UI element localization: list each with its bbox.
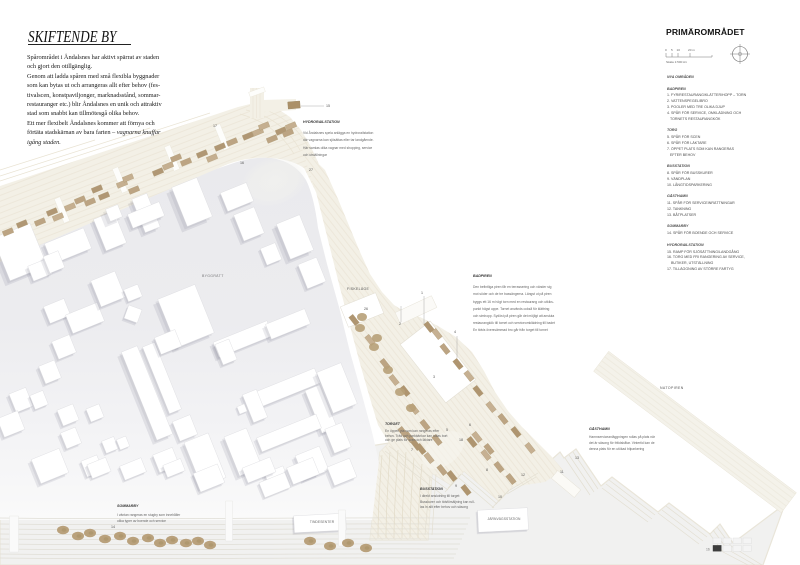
svg-text:27: 27 [309,168,313,172]
svg-text:10: 10 [498,495,502,499]
svg-text:4: 4 [454,330,456,334]
svg-text:0: 0 [665,48,667,52]
svg-text:12: 12 [521,473,525,477]
svg-text:Skala 1:500 A1: Skala 1:500 A1 [666,60,687,64]
svg-text:10: 10 [677,48,681,52]
svg-text:2: 2 [399,322,401,326]
svg-text:5: 5 [671,48,673,52]
svg-text:6: 6 [469,423,471,427]
svg-text:26: 26 [364,307,368,311]
svg-text:16: 16 [706,548,710,552]
svg-text:1: 1 [421,291,423,295]
svg-text:20 m: 20 m [688,48,695,52]
svg-text:11: 11 [560,470,564,474]
svg-text:13: 13 [575,456,579,460]
svg-text:18: 18 [459,438,463,442]
svg-text:15: 15 [326,104,330,108]
svg-text:16: 16 [240,161,244,165]
svg-text:7: 7 [411,448,413,452]
svg-text:14: 14 [111,525,115,529]
svg-text:3: 3 [433,375,435,379]
svg-text:8: 8 [486,468,488,472]
